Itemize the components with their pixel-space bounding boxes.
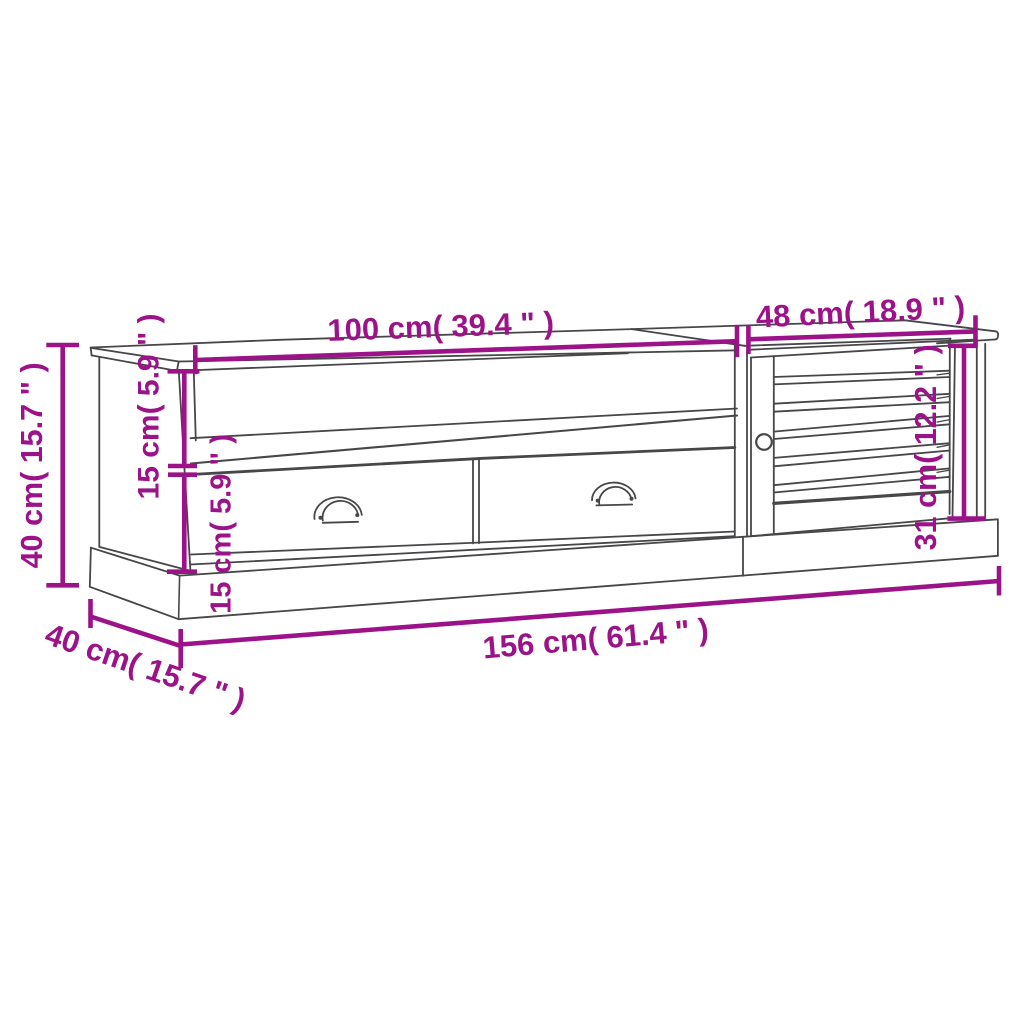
svg-text:40 cm( 15.7 " ): 40 cm( 15.7 " ) (41, 616, 250, 717)
svg-text:15 cm( 5.9 " ): 15 cm( 5.9 " ) (133, 314, 166, 500)
svg-text:40 cm( 15.7 " ): 40 cm( 15.7 " ) (15, 362, 49, 568)
svg-text:48 cm( 18.9 " ): 48 cm( 18.9 " ) (755, 289, 966, 334)
svg-text:100 cm( 39.4 " ): 100 cm( 39.4 " ) (327, 305, 555, 348)
svg-text:15 cm( 5.9 " ): 15 cm( 5.9 " ) (206, 434, 238, 614)
svg-text:31 cm( 12.2 " ): 31 cm( 12.2 " ) (909, 344, 943, 550)
